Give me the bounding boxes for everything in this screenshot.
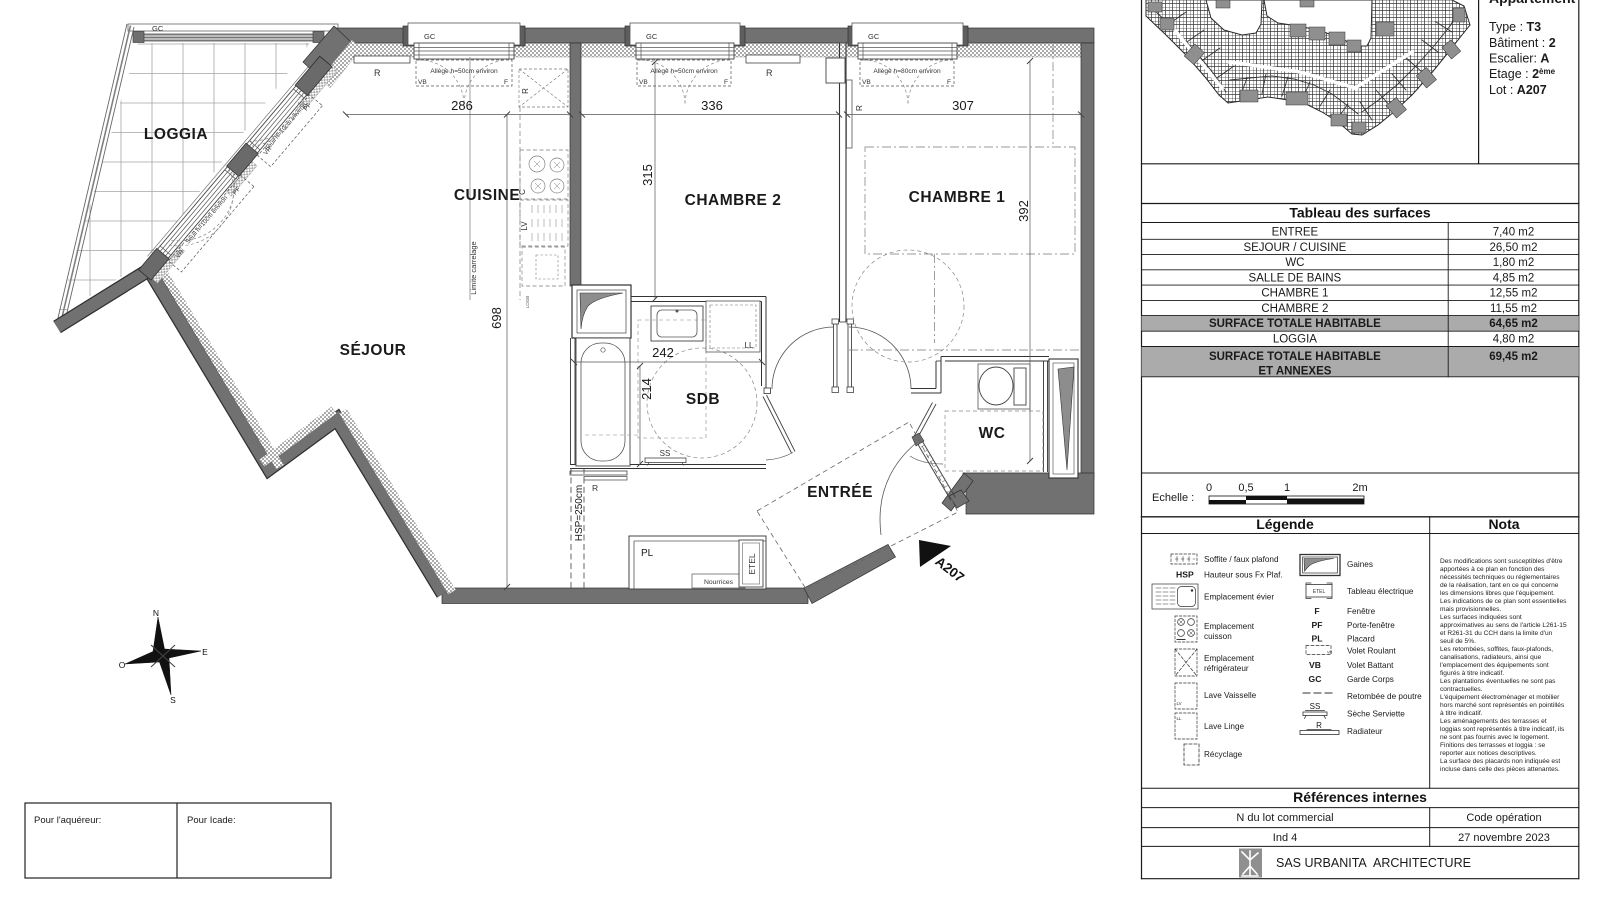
svg-text:Références internes: Références internes <box>1293 789 1427 805</box>
svg-text:PL: PL <box>1312 634 1323 644</box>
svg-text:Emplacement: Emplacement <box>1204 654 1255 663</box>
svg-text:Sèche Serviette: Sèche Serviette <box>1347 710 1405 719</box>
svg-text:SALLE DE BAINS: SALLE DE BAINS <box>1249 272 1342 284</box>
svg-text:Emplacement évier: Emplacement évier <box>1204 593 1274 602</box>
svg-text:R: R <box>374 68 381 78</box>
svg-text:incluse dans celle des pièces: incluse dans celle des pièces attenantes… <box>1440 766 1560 773</box>
svg-text:CHAMBRE 2: CHAMBRE 2 <box>1261 303 1328 315</box>
svg-text:Les surfaces indiquées sont: Les surfaces indiquées sont <box>1440 614 1522 621</box>
svg-text:286: 286 <box>451 98 473 113</box>
svg-text:12,55 m2: 12,55 m2 <box>1490 288 1538 300</box>
svg-text:N: N <box>153 608 159 618</box>
svg-text:Appartement: Appartement <box>1489 0 1576 6</box>
svg-text:CUISINE: CUISINE <box>454 187 520 204</box>
svg-text:HSP: HSP <box>1176 570 1194 580</box>
svg-text:Placard: Placard <box>1347 635 1375 644</box>
svg-text:ETEL: ETEL <box>1313 589 1326 595</box>
svg-text:approximatives au sens de l'ar: approximatives au sens de l'article L261… <box>1440 622 1567 629</box>
svg-text:Nota: Nota <box>1488 516 1519 532</box>
svg-text:R: R <box>521 88 530 94</box>
svg-text:PL: PL <box>641 548 654 559</box>
svg-text:HSP=250cm: HSP=250cm <box>574 485 585 541</box>
svg-text:mais provisionnelles.: mais provisionnelles. <box>1440 606 1501 613</box>
svg-text:SÉJOUR: SÉJOUR <box>340 342 407 359</box>
svg-text:Ind 4: Ind 4 <box>1273 832 1297 844</box>
svg-text:69,45 m2: 69,45 m2 <box>1489 351 1538 363</box>
svg-text:242: 242 <box>652 345 674 360</box>
svg-text:Lave Vaisselle: Lave Vaisselle <box>1204 691 1257 700</box>
svg-text:Hauteur sous Fx Plaf.: Hauteur sous Fx Plaf. <box>1204 571 1283 580</box>
svg-text:0,5: 0,5 <box>1238 482 1253 494</box>
svg-text:WC: WC <box>1285 257 1304 269</box>
svg-text:Radiateur: Radiateur <box>1347 727 1383 736</box>
svg-text:Allège h=80cm environ: Allège h=80cm environ <box>873 68 941 75</box>
svg-text:Lot : A207: Lot : A207 <box>1489 83 1547 97</box>
svg-text:figurés à titre indicatif.: figurés à titre indicatif. <box>1440 670 1504 677</box>
svg-text:WC: WC <box>979 425 1006 442</box>
svg-text:CHAMBRE 1: CHAMBRE 1 <box>909 189 1006 206</box>
svg-text:Pour l'aquéreur:: Pour l'aquéreur: <box>34 815 101 826</box>
svg-text:R: R <box>854 105 864 111</box>
svg-text:7,40 m2: 7,40 m2 <box>1493 227 1535 239</box>
svg-text:VB: VB <box>1309 660 1321 670</box>
svg-text:Les aménagements des terrasses: Les aménagements des terrasses et <box>1440 718 1547 725</box>
svg-text:1: 1 <box>1284 482 1290 494</box>
svg-text:CHAMBRE 1: CHAMBRE 1 <box>1261 288 1328 300</box>
svg-text:Les plantations éventuelles ne: Les plantations éventuelles ne sont pas <box>1440 678 1556 685</box>
svg-text:ENTREE: ENTREE <box>1272 227 1319 239</box>
svg-text:E: E <box>202 647 208 657</box>
svg-text:315: 315 <box>640 164 655 186</box>
svg-text:Garde Corps: Garde Corps <box>1347 675 1394 684</box>
svg-text:Porte-fenêtre: Porte-fenêtre <box>1347 621 1395 630</box>
svg-text:LOGB: LOGB <box>525 296 530 309</box>
svg-text:11,55 m2: 11,55 m2 <box>1490 303 1537 315</box>
svg-text:Les retombées, soffites, faux-: Les retombées, soffites, faux-plafonds, <box>1440 646 1553 653</box>
svg-text:F: F <box>947 79 951 86</box>
svg-text:CHAMBRE 2: CHAMBRE 2 <box>685 192 782 209</box>
svg-text:l'emplacement des équipements: l'emplacement des équipements sont <box>1440 662 1549 669</box>
svg-text:Gaines: Gaines <box>1347 560 1373 569</box>
svg-text:Pour Icade:: Pour Icade: <box>187 815 236 826</box>
svg-text:GC: GC <box>152 24 164 33</box>
svg-text:VR: VR <box>1327 651 1333 655</box>
svg-text:LL: LL <box>1177 716 1183 721</box>
svg-text:N du lot commercial: N du lot commercial <box>1236 812 1333 824</box>
svg-text:1,80 m2: 1,80 m2 <box>1493 257 1535 269</box>
svg-text:SAS URBANITA ARCHITECTURE: SAS URBANITA ARCHITECTURE <box>1276 856 1471 870</box>
svg-text:27 novembre 2023: 27 novembre 2023 <box>1458 832 1550 844</box>
svg-text:LV: LV <box>1177 701 1182 706</box>
svg-text:Allège h=50cm environ: Allège h=50cm environ <box>650 68 718 75</box>
svg-text:Allège h=50cm environ: Allège h=50cm environ <box>430 68 498 75</box>
svg-text:et R261-31 du CCH dans la limi: et R261-31 du CCH dans la limite d'un <box>1440 630 1553 637</box>
svg-text:apportées à ce plan en fonctio: apportées à ce plan en fonction des <box>1440 566 1545 573</box>
svg-text:hors marché sont représentés e: hors marché sont représentés en pointill… <box>1440 702 1565 709</box>
svg-text:R: R <box>592 483 598 493</box>
svg-text:4,80 m2: 4,80 m2 <box>1493 334 1535 346</box>
svg-text:698: 698 <box>489 307 504 329</box>
svg-text:Echelle :: Echelle : <box>1152 492 1194 504</box>
svg-text:0: 0 <box>1206 482 1212 494</box>
svg-text:PF: PF <box>1312 620 1323 630</box>
svg-text:VB: VB <box>639 79 648 86</box>
svg-text:336: 336 <box>701 98 723 113</box>
svg-text:SDB: SDB <box>686 391 720 408</box>
svg-text:nécessités techniques ou régle: nécessités techniques ou réglementaires <box>1440 574 1560 581</box>
svg-text:214: 214 <box>639 378 654 400</box>
svg-text:SS: SS <box>660 449 671 458</box>
svg-text:LL: LL <box>745 341 754 350</box>
svg-text:GC: GC <box>868 32 880 41</box>
svg-text:Récyclage: Récyclage <box>1204 750 1243 759</box>
svg-text:les dimensions libres que l'éq: les dimensions libres que l'équipement. <box>1440 590 1555 597</box>
svg-text:R: R <box>1316 721 1322 730</box>
svg-text:SURFACE TOTALE HABITABLE: SURFACE TOTALE HABITABLE <box>1209 318 1381 330</box>
svg-text:26,50 m2: 26,50 m2 <box>1490 242 1538 254</box>
svg-text:Volet Battant: Volet Battant <box>1347 661 1394 670</box>
svg-text:Des modifications sont suscept: Des modifications sont susceptibles d'êt… <box>1440 558 1563 565</box>
svg-text:Légende: Légende <box>1256 516 1314 532</box>
svg-text:ne sont pas fournis avec le lo: ne sont pas fournis avec le logement. <box>1440 734 1549 741</box>
svg-text:ETEL: ETEL <box>747 553 757 575</box>
svg-text:F: F <box>1314 606 1319 616</box>
svg-text:Nourrices: Nourrices <box>704 579 734 586</box>
svg-text:2m: 2m <box>1352 482 1367 494</box>
svg-text:GC: GC <box>1309 674 1322 684</box>
svg-text:VB: VB <box>418 79 427 86</box>
svg-text:4,85 m2: 4,85 m2 <box>1493 272 1535 284</box>
svg-text:Limite carrelage: Limite carrelage <box>469 241 478 294</box>
svg-text:LOGGIA: LOGGIA <box>1273 334 1317 346</box>
svg-text:GC: GC <box>646 32 658 41</box>
svg-text:R: R <box>766 68 773 78</box>
svg-text:SEJOUR / CUISINE: SEJOUR / CUISINE <box>1243 242 1346 254</box>
svg-text:Type : T3: Type : T3 <box>1489 20 1541 34</box>
svg-text:LV: LV <box>520 221 529 231</box>
svg-text:à titre indicatif.: à titre indicatif. <box>1440 710 1483 717</box>
svg-text:Volet Roulant: Volet Roulant <box>1347 647 1396 656</box>
svg-text:SS: SS <box>1310 702 1321 711</box>
svg-text:64,65 m2: 64,65 m2 <box>1489 318 1538 330</box>
svg-text:Fenêtre: Fenêtre <box>1347 607 1376 616</box>
svg-text:O: O <box>119 660 126 670</box>
svg-text:Finitions des terrasses et log: Finitions des terrasses et loggia : se <box>1440 742 1546 749</box>
svg-text:contractuelles.: contractuelles. <box>1440 686 1483 693</box>
svg-text:Escalier: A: Escalier: A <box>1489 52 1549 66</box>
svg-text:S: S <box>170 695 176 705</box>
svg-text:ENTRÉE: ENTRÉE <box>807 484 873 501</box>
svg-text:loggias sont représentés à tit: loggias sont représentés à titre indicat… <box>1440 726 1565 733</box>
svg-text:LOGGIA: LOGGIA <box>144 126 208 143</box>
svg-text:Code opération: Code opération <box>1466 812 1541 824</box>
svg-text:307: 307 <box>952 98 974 113</box>
svg-text:de la réalisation, tant en ce: de la réalisation, tant en ce qui concer… <box>1440 582 1559 589</box>
svg-text:réfrigérateur: réfrigérateur <box>1204 664 1249 673</box>
svg-text:GC: GC <box>424 32 436 41</box>
svg-text:Lave Linge: Lave Linge <box>1204 722 1245 731</box>
svg-text:Emplacement: Emplacement <box>1204 622 1255 631</box>
svg-text:seuil de 5%.: seuil de 5%. <box>1440 638 1476 645</box>
svg-text:F: F <box>504 79 508 86</box>
svg-text:Bâtiment : 2: Bâtiment : 2 <box>1489 36 1556 50</box>
svg-text:reporter aux notices descripti: reporter aux notices descriptives. <box>1440 750 1537 757</box>
svg-text:Tableau des surfaces: Tableau des surfaces <box>1289 205 1431 221</box>
svg-text:392: 392 <box>1016 200 1031 222</box>
svg-text:SURFACE TOTALE HABITABLE: SURFACE TOTALE HABITABLE <box>1209 351 1381 363</box>
svg-text:F: F <box>724 79 728 86</box>
svg-text:Tableau électrique: Tableau électrique <box>1347 587 1414 596</box>
svg-text:Soffite / faux plafond: Soffite / faux plafond <box>1204 555 1279 564</box>
svg-text:canalisations, radiateurs, ain: canalisations, radiateurs, ainsi que <box>1440 654 1541 661</box>
svg-text:cuisson: cuisson <box>1204 632 1232 641</box>
svg-text:VB: VB <box>862 79 871 86</box>
svg-text:Les indications de ce plan son: Les indications de ce plan sont essentie… <box>1440 598 1567 605</box>
svg-text:ET ANNEXES: ET ANNEXES <box>1258 366 1331 378</box>
svg-text:Retombée de poutre: Retombée de poutre <box>1347 692 1422 701</box>
svg-text:L'équipement électroménager et: L'équipement électroménager et mobilier <box>1440 694 1560 701</box>
svg-text:La surface des placards non in: La surface des placards non indiquée est <box>1440 758 1560 765</box>
